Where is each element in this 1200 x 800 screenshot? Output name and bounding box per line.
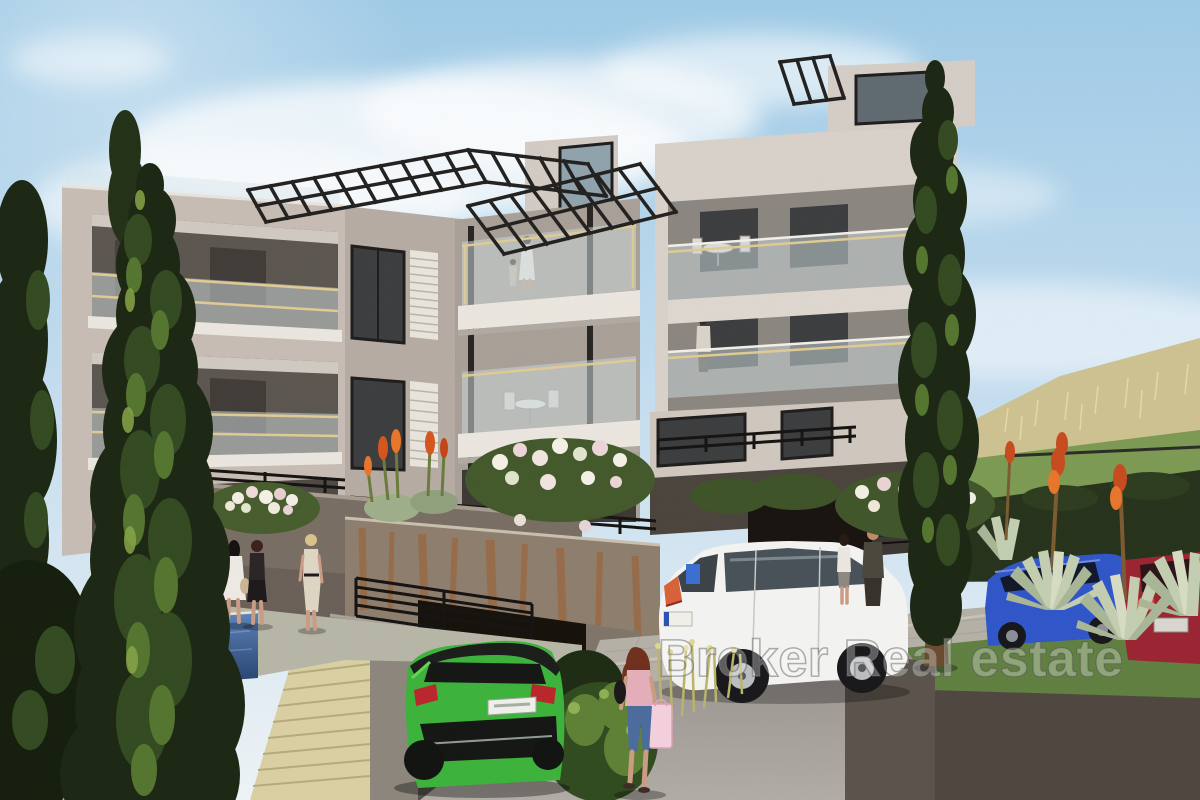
architectural-render: 3D exterior visualization of a modern th…	[0, 0, 1200, 800]
render-grain	[0, 0, 1200, 800]
